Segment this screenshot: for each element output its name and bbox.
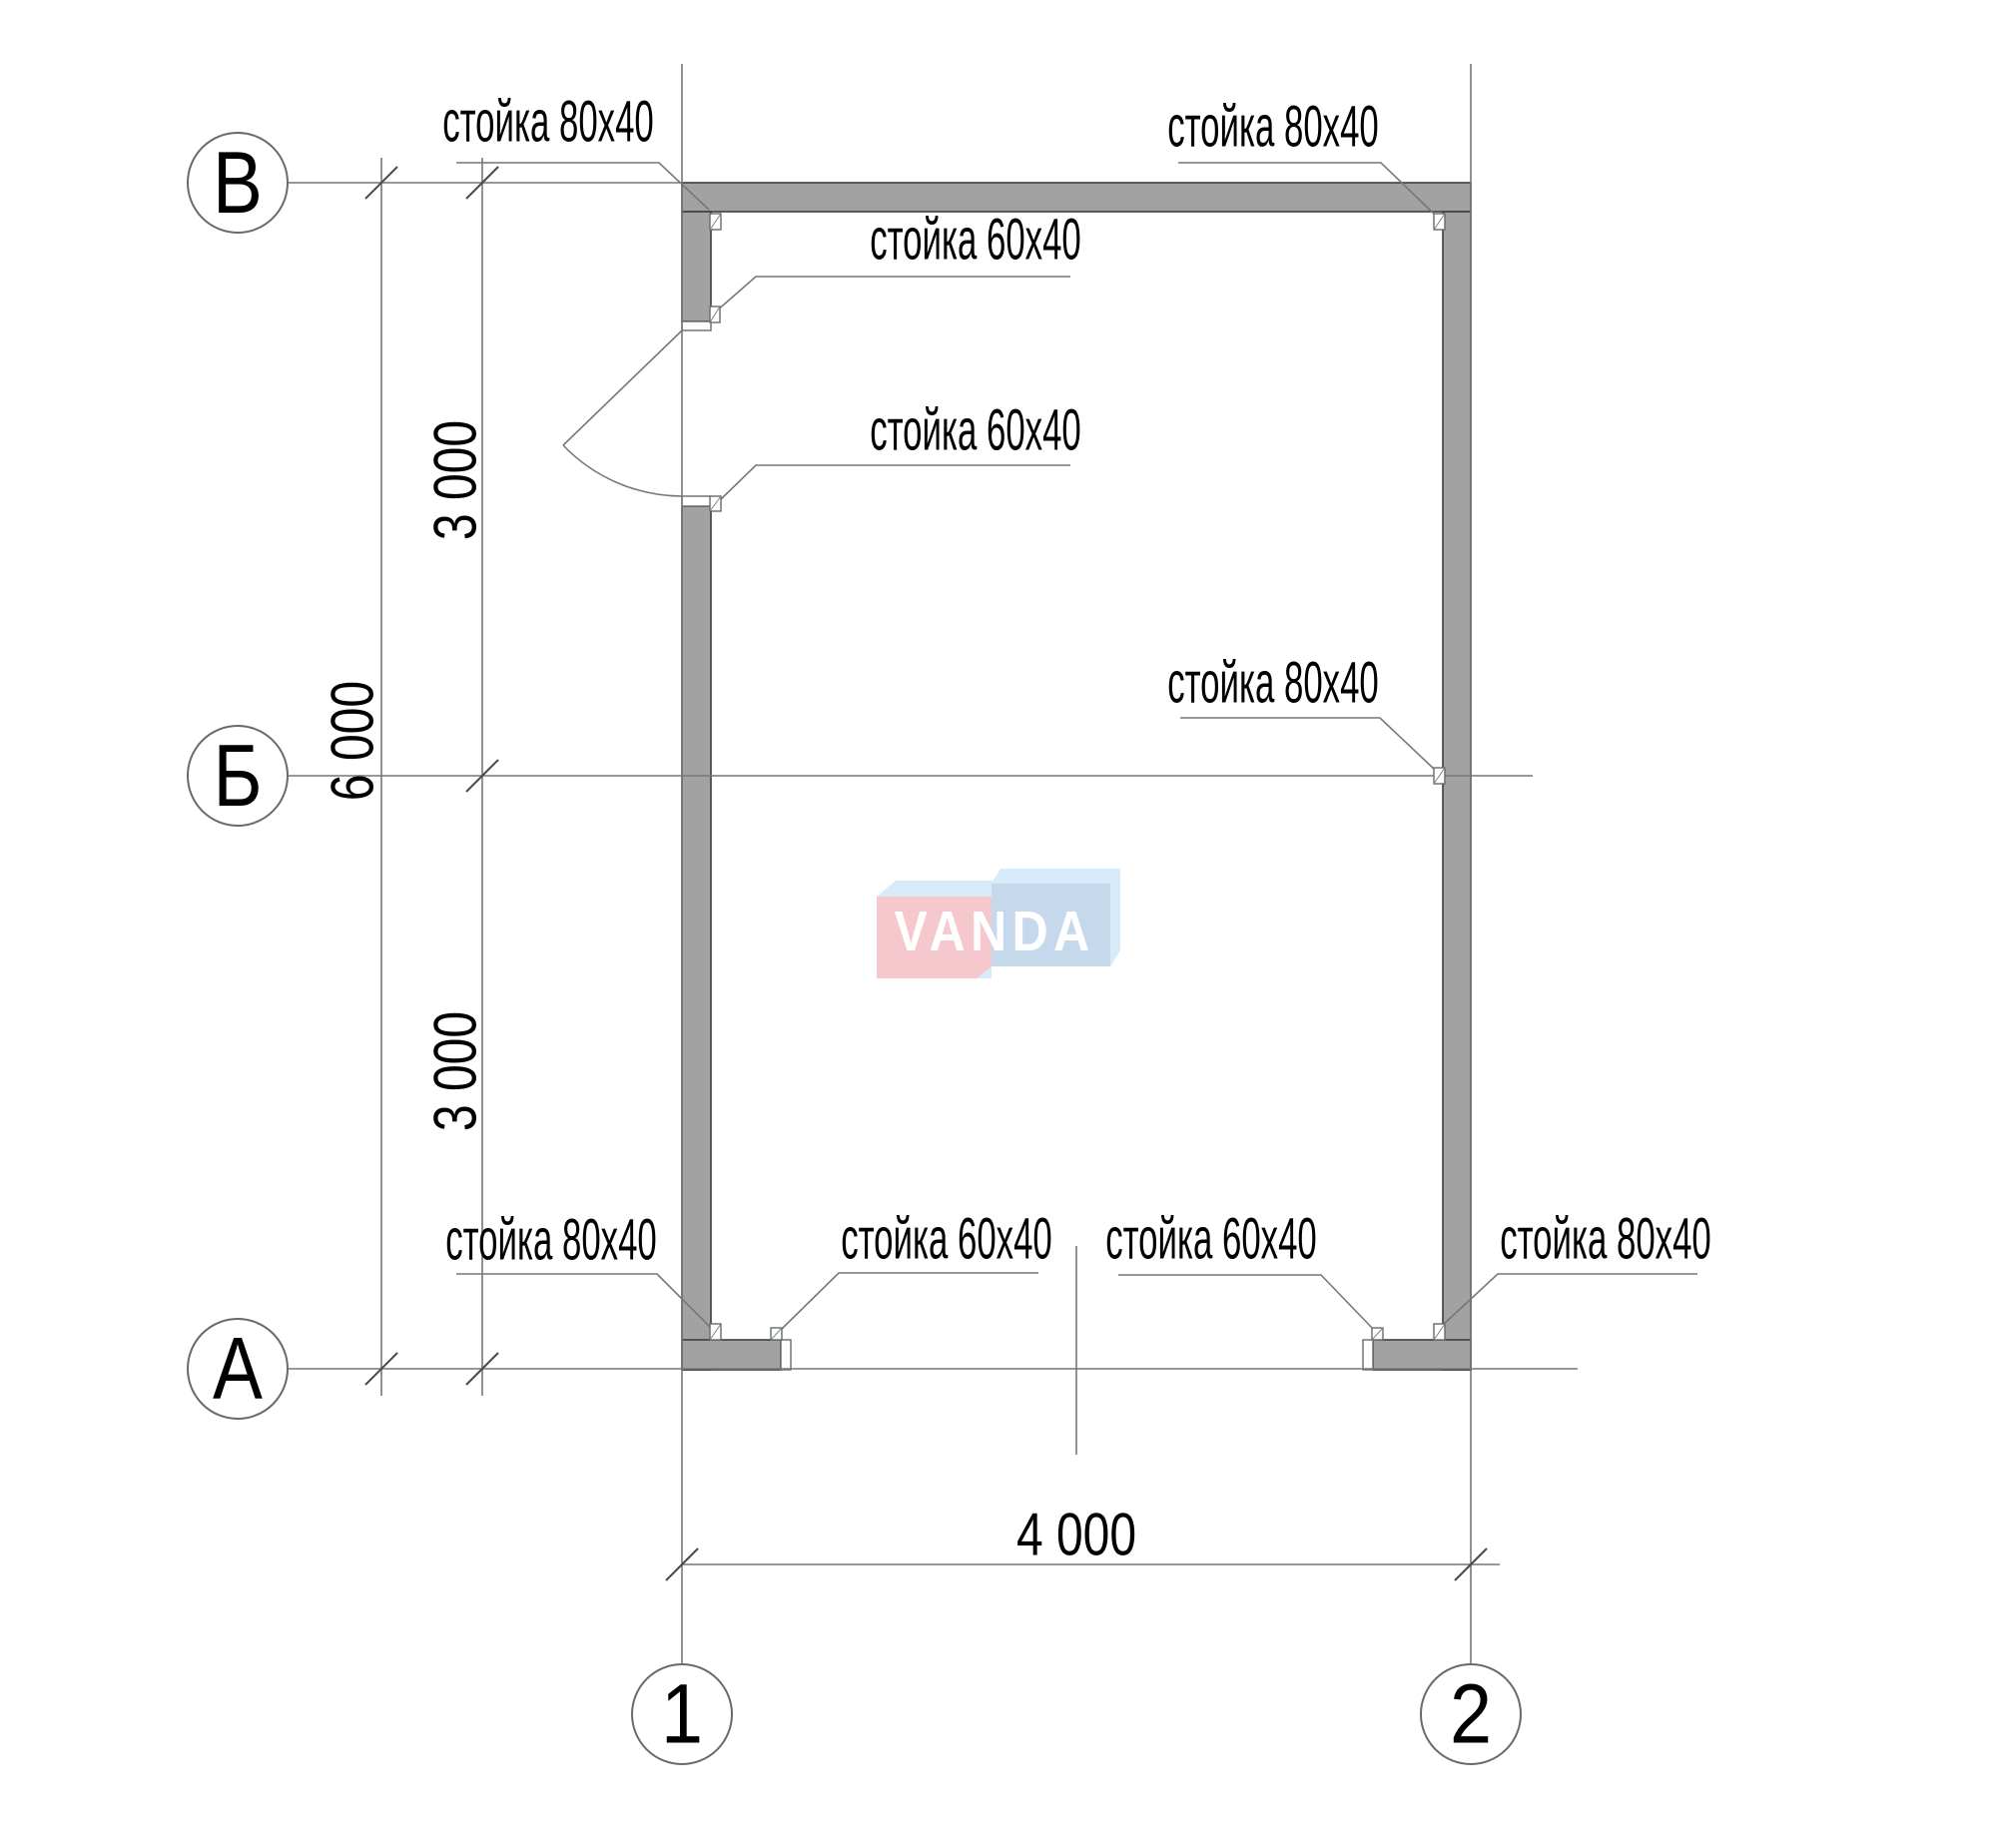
gate-jamb-right: [1363, 1340, 1373, 1370]
posts: [710, 214, 1445, 1340]
wall-bottom-right: [1373, 1340, 1471, 1370]
post-80x40-top-right: [1434, 214, 1445, 230]
annotation-post-80x40-bottom-right: стойка 80x40: [1430, 1206, 1782, 1273]
axis-lines: [288, 64, 1578, 1664]
annotation-post-80x40-top-right: стойка 80x40: [1097, 94, 1450, 161]
annotation-post-80x40-mid-right: стойка 80x40: [1097, 650, 1450, 717]
post-80x40-bottom-right: [1434, 1324, 1445, 1340]
leader-post-60x40-bottom-1: [782, 1273, 1038, 1329]
wall-left-upper: [682, 212, 711, 321]
dimension-top-segment: 3 000: [421, 405, 490, 555]
vanda-watermark-text: VANDA: [881, 899, 1108, 964]
gate-jamb-left: [781, 1340, 791, 1370]
post-60x40-bottom-2: [1372, 1328, 1383, 1340]
axis-label-b: Б: [209, 725, 267, 827]
annotation-post-60x40-lower: стойка 60x40: [800, 397, 1152, 464]
axis-label-a: А: [209, 1318, 268, 1420]
post-60x40-lower: [710, 496, 721, 511]
dimension-width: 4 000: [1001, 1501, 1151, 1569]
annotation-post-80x40-top-left: стойка 80x40: [372, 89, 725, 156]
leader-post-60x40-upper: [716, 277, 1070, 311]
leader-post-80x40-mid-right: [1180, 718, 1435, 770]
leader-lines: [456, 163, 1697, 1329]
logo-blue-box-bevel-right: [1110, 869, 1120, 966]
leader-post-80x40-bottom-left: [456, 1274, 711, 1328]
post-80x40-bottom-left: [710, 1324, 721, 1340]
axis-label-1: 1: [659, 1666, 706, 1763]
post-80x40-top-left: [710, 214, 721, 230]
door-leaf: [563, 330, 682, 445]
annotation-post-60x40-upper: стойка 60x40: [800, 207, 1152, 274]
dimension-overall-height: 6 000: [319, 666, 387, 816]
door-jamb-bottom: [682, 496, 711, 506]
dimension-bottom-segment: 3 000: [421, 996, 490, 1146]
axis-label-2: 2: [1448, 1666, 1495, 1763]
annotation-post-60x40-bottom-2: стойка 60x40: [1035, 1206, 1388, 1273]
logo-blue-box-bevel-top: [992, 869, 1120, 884]
post-60x40-bottom-1: [771, 1328, 782, 1340]
door-swing-arc: [563, 445, 682, 496]
leader-post-60x40-bottom-2: [1118, 1275, 1373, 1329]
annotation-post-80x40-bottom-left: стойка 80x40: [375, 1207, 728, 1274]
door: [563, 330, 682, 496]
leader-post-80x40-bottom-right: [1442, 1274, 1697, 1326]
axis-label-v: В: [209, 132, 268, 234]
post-80x40-mid-right: [1434, 768, 1445, 784]
leader-post-60x40-lower: [721, 465, 1070, 499]
floor-plan: В Б А 1 2 3 000 6 000 3 000 4 000 стойка…: [0, 0, 1997, 1848]
post-60x40-upper: [710, 307, 720, 322]
wall-bottom-left: [682, 1340, 781, 1370]
wall-right: [1443, 212, 1471, 1370]
logo-pink-box-bevel: [877, 881, 1000, 897]
door-jamb-top: [682, 321, 711, 330]
axis-circles: [188, 133, 1521, 1764]
